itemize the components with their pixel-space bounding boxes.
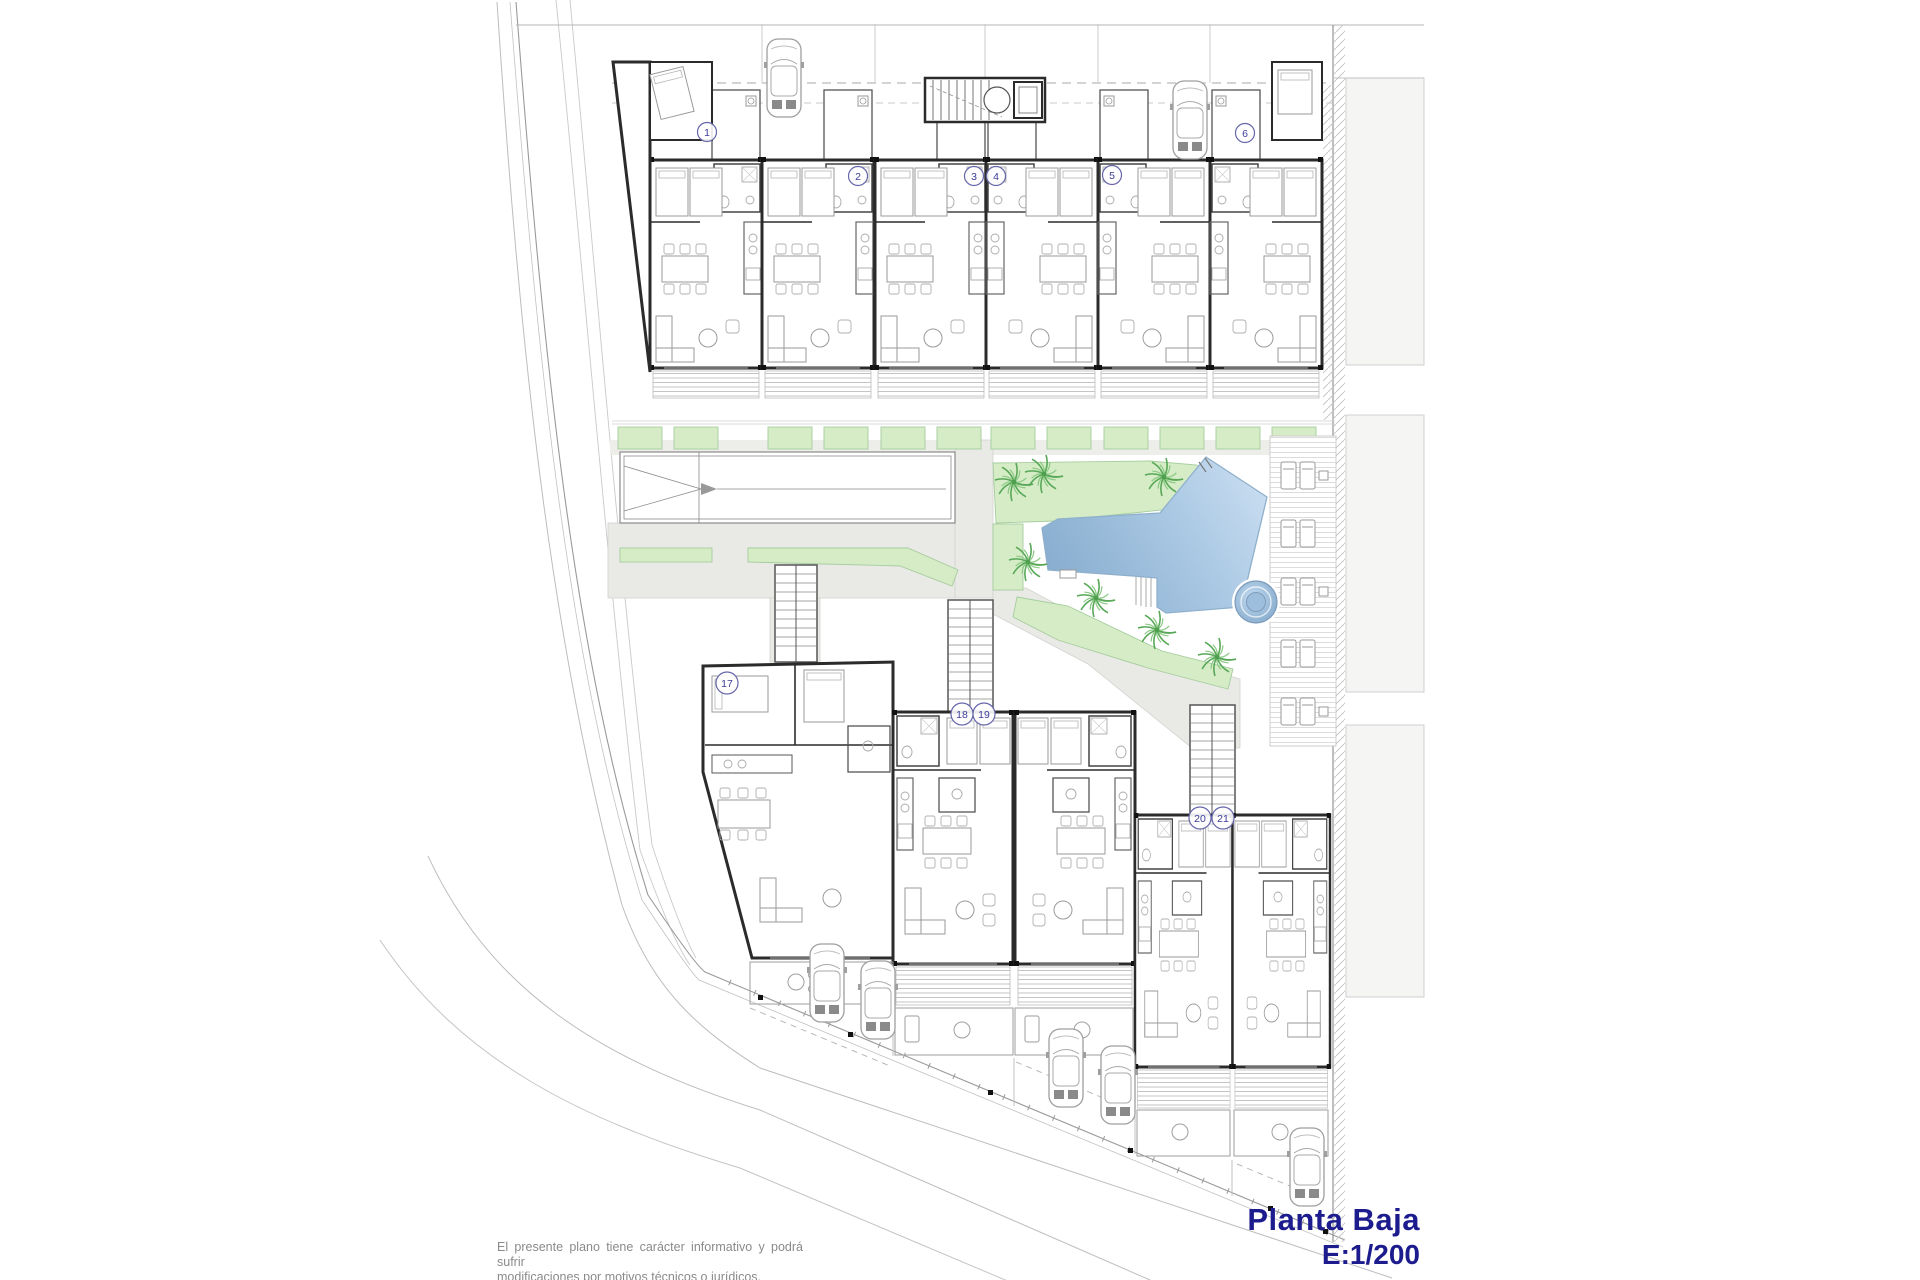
floor-plan-page: 1234561718192021 Planta Baja E:1/200 El … <box>0 0 1920 1280</box>
sun-lounger-icon <box>1300 462 1315 489</box>
unit-6-annex <box>1272 62 1322 140</box>
sun-lounger-icon <box>1300 640 1315 667</box>
pool-steps-icon <box>1136 577 1151 607</box>
plan-scale: E:1/200 <box>1080 1240 1420 1269</box>
stair-shaft <box>1190 705 1235 815</box>
deck-table <box>1319 471 1328 480</box>
svg-text:18: 18 <box>956 709 968 721</box>
unit-badge: 19 <box>973 703 995 725</box>
unit-badge: 1 <box>698 123 717 142</box>
car-icon <box>1287 1128 1327 1206</box>
sun-lounger-icon <box>1281 698 1296 725</box>
stair-shaft <box>948 600 993 712</box>
sun-lounger-icon <box>1300 520 1315 547</box>
unit-badge: 21 <box>1212 807 1234 829</box>
disclaimer-line-2: modificaciones por motivos técnicos o ju… <box>497 1270 803 1280</box>
svg-text:17: 17 <box>721 678 733 690</box>
sun-deck <box>1270 436 1336 746</box>
upper-building-row <box>612 24 1333 420</box>
car-icon <box>807 944 847 1022</box>
unit-badge: 5 <box>1103 166 1122 185</box>
palm-tree-icon <box>1077 579 1115 617</box>
sun-lounger-icon <box>1281 578 1296 605</box>
unit-badge: 2 <box>849 167 868 186</box>
svg-text:3: 3 <box>971 171 977 183</box>
unit-badge: 17 <box>716 672 738 694</box>
title-block: Planta Baja E:1/200 <box>1080 1204 1420 1269</box>
svg-text:1: 1 <box>704 127 710 139</box>
stair-core <box>925 78 1045 122</box>
car-icon <box>764 39 804 117</box>
svg-text:20: 20 <box>1194 813 1206 825</box>
car-icon <box>1098 1046 1138 1124</box>
disclaimer-line-1: El presente plano tiene carácter informa… <box>497 1240 803 1270</box>
jacuzzi <box>1232 578 1280 626</box>
deck-table <box>1319 707 1328 716</box>
sun-lounger-icon <box>1281 640 1296 667</box>
svg-text:5: 5 <box>1109 170 1115 182</box>
garage-ramp <box>620 452 955 523</box>
sun-lounger-icon <box>1281 462 1296 489</box>
svg-text:19: 19 <box>978 709 990 721</box>
svg-text:6: 6 <box>1242 128 1248 140</box>
svg-text:4: 4 <box>993 171 999 183</box>
pool-bench <box>1060 570 1076 578</box>
disclaimer-note: El presente plano tiene carácter informa… <box>497 1240 803 1280</box>
sun-lounger-icon <box>1281 520 1296 547</box>
deck-table <box>1319 587 1328 596</box>
lower-building-blocks <box>703 565 1331 1234</box>
sun-lounger-icon <box>1300 698 1315 725</box>
unit-badge: 6 <box>1236 124 1255 143</box>
unit-badge: 18 <box>951 703 973 725</box>
unit-badge: 20 <box>1189 807 1211 829</box>
stair-shaft <box>775 565 817 662</box>
unit-badge: 4 <box>987 167 1006 186</box>
svg-text:2: 2 <box>855 171 861 183</box>
plan-title: Planta Baja <box>1080 1204 1420 1237</box>
car-icon <box>858 961 898 1039</box>
car-icon <box>1170 81 1210 159</box>
floor-plan-canvas: 1234561718192021 <box>0 0 1920 1280</box>
car-icon <box>1046 1029 1086 1107</box>
unit-badge: 3 <box>965 167 984 186</box>
sun-lounger-icon <box>1300 578 1315 605</box>
svg-text:21: 21 <box>1217 813 1229 825</box>
unit-17 <box>703 662 893 958</box>
